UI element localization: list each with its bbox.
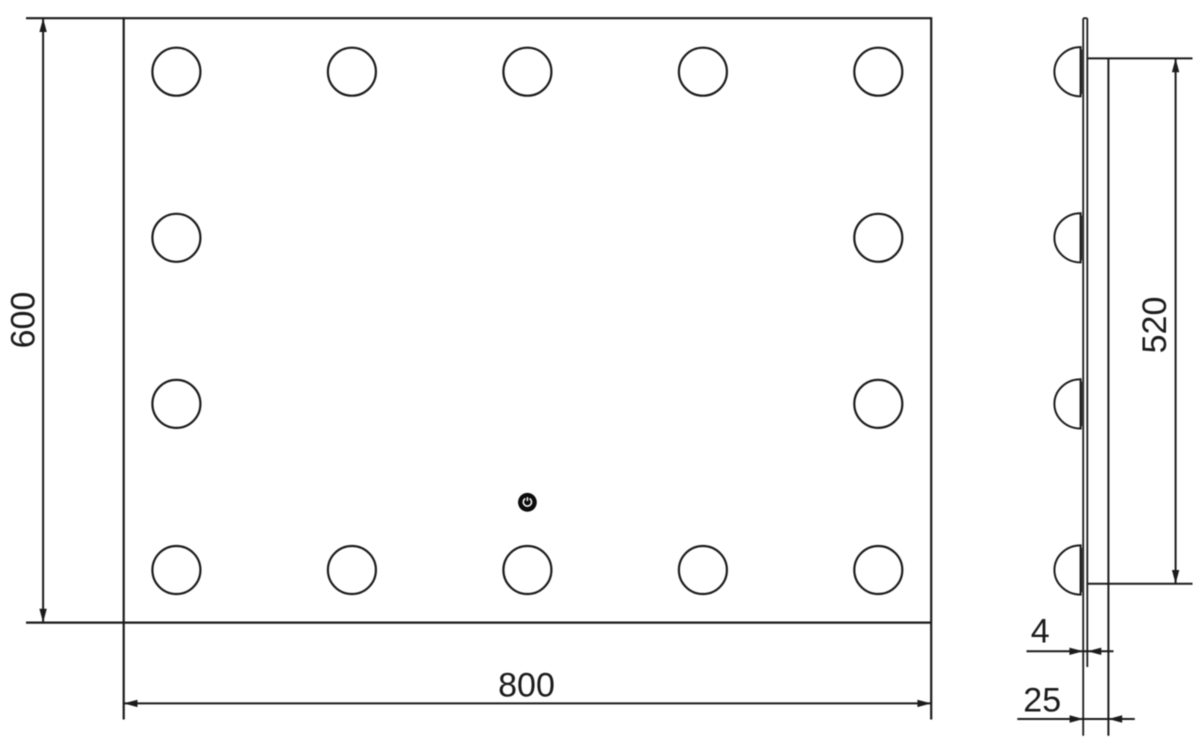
svg-text:25: 25: [1023, 682, 1061, 720]
svg-text:4: 4: [1031, 613, 1050, 651]
svg-text:520: 520: [1136, 297, 1174, 354]
svg-text:600: 600: [5, 292, 43, 349]
svg-text:800: 800: [498, 667, 555, 705]
